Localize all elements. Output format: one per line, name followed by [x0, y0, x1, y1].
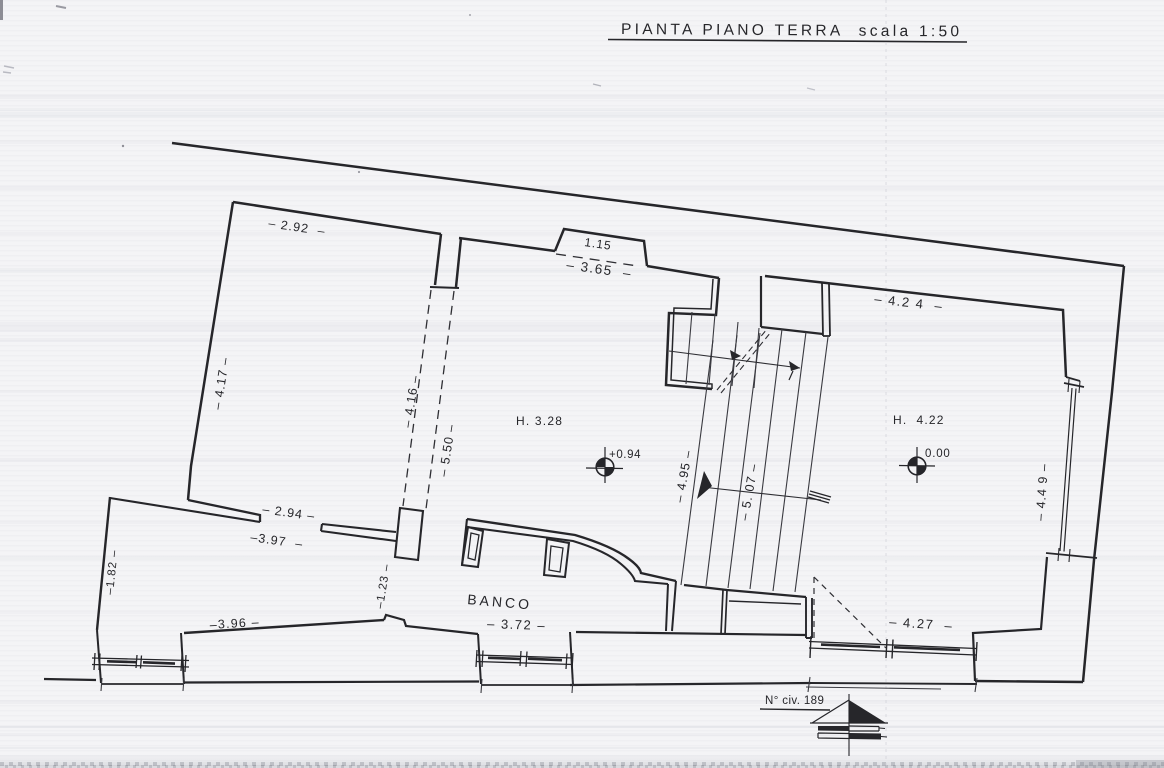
svg-text:0.00: 0.00 [925, 448, 951, 460]
svg-text:– 3.72 –: – 3.72 – [487, 616, 546, 633]
svg-text:– 4.16 –: – 4.16 – [400, 374, 422, 429]
svg-text:H. 4.22: H. 4.22 [893, 413, 945, 427]
svg-text:1.15: 1.15 [584, 235, 613, 253]
svg-text:– 2.94 –: – 2.94 – [262, 502, 317, 523]
svg-text:– 3.65 –: – 3.65 – [566, 257, 633, 281]
svg-text:– 5.50 –: – 5.50 – [436, 423, 458, 478]
svg-text:N° civ. 189: N° civ. 189 [765, 695, 824, 707]
svg-text:+0.94: +0.94 [609, 449, 641, 461]
svg-text:–1.82 –: –1.82 – [104, 549, 121, 595]
svg-text:– 4.27 –: – 4.27 – [889, 614, 954, 633]
svg-text:– 4.17 –: – 4.17 – [210, 356, 232, 411]
svg-text:H. 3.28: H. 3.28 [516, 414, 563, 428]
svg-text:– 2.92 –: – 2.92 – [268, 216, 327, 238]
svg-text:PIANTA PIANO TERRA scala 1:50: PIANTA PIANO TERRA scala 1:50 [621, 21, 962, 40]
svg-text:–1.23 –: –1.23 – [374, 563, 393, 610]
svg-text:– 4.95 –: – 4.95 – [672, 449, 695, 504]
svg-text:BANCO: BANCO [467, 591, 533, 613]
svg-text:– 5. 07 –: – 5. 07 – [737, 462, 761, 521]
svg-text:– 4.4 9 –: – 4.4 9 – [1033, 463, 1051, 521]
svg-text:–3.97 –: –3.97 – [250, 530, 305, 551]
